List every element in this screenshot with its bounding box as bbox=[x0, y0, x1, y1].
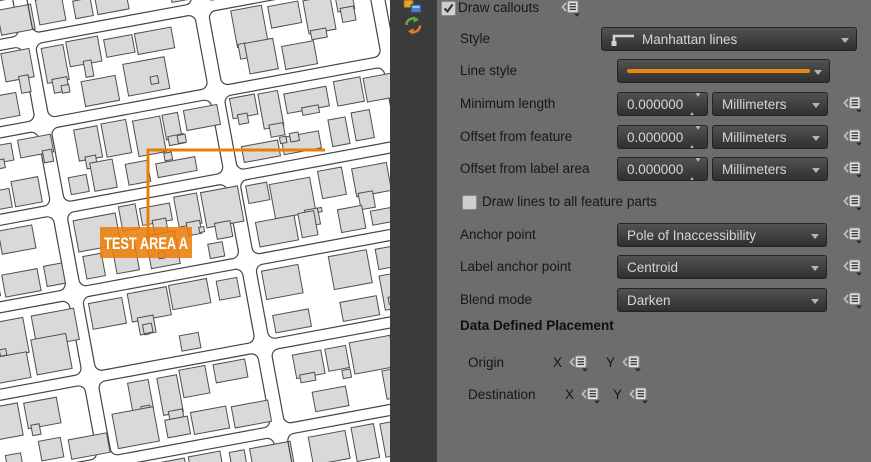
destination-x-label: X bbox=[565, 386, 574, 404]
offset-from-feature-value: 0.000000 bbox=[627, 130, 683, 145]
style-combobox[interactable]: Manhattan lines bbox=[601, 27, 857, 51]
building bbox=[213, 359, 248, 383]
label-anchor-point-combobox[interactable]: Centroid bbox=[617, 255, 827, 279]
building bbox=[42, 149, 53, 163]
unit-value: Millimeters bbox=[722, 130, 787, 145]
building bbox=[382, 367, 390, 399]
building bbox=[177, 134, 186, 143]
building bbox=[279, 136, 286, 143]
building bbox=[380, 417, 390, 458]
building bbox=[342, 369, 352, 379]
building bbox=[375, 242, 390, 269]
offset-from-label-area-spinbox[interactable]: 0.000000 bbox=[617, 157, 708, 181]
anchor-point-combobox[interactable]: Pole of Inaccessibility bbox=[617, 223, 827, 247]
building bbox=[340, 296, 380, 322]
building bbox=[0, 188, 12, 210]
draw-lines-all-parts-label: Draw lines to all feature parts bbox=[482, 193, 657, 211]
building bbox=[2, 269, 41, 297]
street-block-outline bbox=[381, 0, 390, 54]
chevron-down-icon bbox=[812, 103, 820, 108]
draw-lines-all-parts-checkbox[interactable] bbox=[462, 195, 477, 210]
building bbox=[246, 182, 270, 203]
building bbox=[81, 75, 120, 106]
building bbox=[363, 73, 390, 102]
blend-mode-label: Blend mode bbox=[460, 291, 532, 309]
data-defined-override-button[interactable] bbox=[843, 258, 864, 276]
building bbox=[379, 272, 390, 311]
map-canvas[interactable]: TEST AREA A bbox=[0, 0, 390, 462]
minimum-length-label: Minimum length bbox=[460, 95, 555, 113]
building bbox=[93, 0, 129, 15]
building bbox=[0, 159, 5, 170]
anchor-point-label: Anchor point bbox=[460, 226, 536, 244]
minimum-length-value: 0.000000 bbox=[627, 97, 683, 112]
offset-from-label-area-unit-combobox[interactable]: Millimeters bbox=[712, 157, 828, 181]
building bbox=[349, 335, 390, 374]
callouts-panel: Draw callouts Style Manhattan lines Line… bbox=[437, 0, 871, 462]
chevron-down-icon bbox=[814, 70, 822, 75]
building bbox=[351, 110, 374, 141]
anchor-point-value: Pole of Inaccessibility bbox=[627, 228, 756, 243]
building bbox=[199, 227, 205, 233]
building bbox=[333, 77, 364, 106]
unit-value: Millimeters bbox=[722, 162, 787, 177]
building bbox=[0, 403, 23, 442]
building bbox=[101, 119, 132, 157]
building bbox=[68, 174, 89, 194]
building bbox=[269, 123, 285, 138]
building bbox=[0, 92, 20, 122]
building bbox=[318, 167, 347, 199]
chevron-down-icon bbox=[811, 234, 819, 239]
building bbox=[88, 297, 126, 329]
building bbox=[0, 4, 35, 35]
spinner-arrows-icon[interactable] bbox=[689, 97, 701, 112]
building bbox=[273, 309, 312, 333]
building bbox=[1, 48, 34, 81]
building bbox=[31, 424, 41, 436]
building bbox=[74, 126, 103, 161]
building bbox=[156, 157, 197, 178]
building bbox=[317, 207, 322, 212]
building bbox=[255, 215, 298, 247]
building bbox=[325, 345, 350, 371]
building bbox=[208, 242, 225, 259]
building bbox=[289, 132, 299, 142]
chevron-down-icon bbox=[812, 168, 820, 173]
building bbox=[214, 221, 232, 240]
data-defined-override-button[interactable] bbox=[843, 226, 864, 244]
building bbox=[179, 365, 210, 397]
map-svg: TEST AREA A bbox=[0, 0, 390, 462]
spinner-arrows-icon[interactable] bbox=[689, 162, 701, 177]
building bbox=[351, 424, 380, 462]
building bbox=[282, 41, 318, 70]
building bbox=[68, 433, 110, 459]
draw-callouts-checkbox[interactable] bbox=[441, 1, 456, 16]
building bbox=[5, 453, 23, 462]
label-anchor-point-value: Centroid bbox=[627, 260, 678, 275]
offset-from-feature-spinbox[interactable]: 0.000000 bbox=[617, 125, 708, 149]
data-defined-override-button[interactable] bbox=[561, 0, 582, 17]
building bbox=[134, 27, 174, 54]
qgis-callouts-settings: TEST AREA A Draw callouts bbox=[0, 0, 871, 462]
building bbox=[24, 397, 61, 429]
building bbox=[328, 117, 350, 147]
building bbox=[261, 264, 303, 299]
data-defined-placement-heading: Data Defined Placement bbox=[460, 317, 614, 335]
offset-from-label-area-value: 0.000000 bbox=[627, 162, 683, 177]
data-defined-override-button[interactable] bbox=[843, 291, 864, 309]
chevron-down-icon bbox=[811, 299, 819, 304]
building bbox=[268, 1, 302, 28]
building bbox=[0, 225, 36, 254]
offset-from-feature-label: Offset from feature bbox=[460, 128, 572, 146]
data-defined-override-button[interactable] bbox=[843, 95, 864, 113]
line-style-preview bbox=[627, 69, 810, 73]
building bbox=[150, 76, 159, 85]
building bbox=[0, 0, 13, 4]
line-style-combobox[interactable] bbox=[617, 59, 830, 83]
building bbox=[31, 333, 72, 374]
map-label-text: TEST AREA A bbox=[104, 234, 188, 253]
building bbox=[35, 0, 66, 25]
building bbox=[61, 84, 70, 93]
building bbox=[328, 250, 372, 290]
manhattan-lines-icon bbox=[611, 31, 635, 47]
building bbox=[231, 400, 271, 428]
data-defined-override-button[interactable] bbox=[843, 193, 864, 211]
line-style-label: Line style bbox=[460, 62, 517, 80]
minimum-length-unit-combobox[interactable]: Millimeters bbox=[712, 92, 828, 116]
origin-x-label: X bbox=[553, 354, 562, 372]
building bbox=[216, 277, 240, 300]
blend-mode-combobox[interactable]: Darken bbox=[617, 288, 827, 312]
building bbox=[38, 437, 64, 461]
building bbox=[190, 406, 229, 434]
chevron-down-icon bbox=[841, 38, 849, 43]
building bbox=[237, 113, 248, 125]
building bbox=[11, 177, 42, 207]
style-label: Style bbox=[460, 30, 490, 48]
building bbox=[244, 38, 278, 74]
building bbox=[370, 208, 390, 226]
building bbox=[337, 205, 365, 232]
draw-callouts-label: Draw callouts bbox=[458, 0, 539, 17]
offset-from-label-area-label: Offset from label area bbox=[460, 160, 590, 178]
building bbox=[340, 6, 356, 22]
building bbox=[0, 352, 31, 384]
chevron-down-icon bbox=[811, 266, 819, 271]
data-defined-override-button[interactable] bbox=[569, 354, 590, 372]
building bbox=[44, 263, 66, 287]
refresh-arrows-icon[interactable] bbox=[403, 15, 425, 35]
unit-value: Millimeters bbox=[722, 97, 787, 112]
building bbox=[112, 407, 159, 449]
styling-tab-strip bbox=[390, 0, 437, 462]
building bbox=[165, 416, 191, 438]
building bbox=[73, 0, 94, 19]
destination-y-label: Y bbox=[613, 386, 622, 404]
building bbox=[164, 152, 173, 161]
data-defined-override-button[interactable] bbox=[581, 386, 602, 404]
offset-from-feature-unit-combobox[interactable]: Millimeters bbox=[712, 125, 828, 149]
style-value: Manhattan lines bbox=[642, 32, 737, 47]
street-blocks bbox=[0, 0, 390, 462]
building bbox=[123, 57, 170, 96]
building bbox=[179, 332, 201, 351]
building bbox=[308, 430, 350, 462]
building bbox=[188, 451, 226, 462]
data-defined-override-button[interactable] bbox=[622, 354, 643, 372]
destination-label: Destination bbox=[468, 386, 536, 404]
building bbox=[0, 349, 7, 357]
building bbox=[0, 270, 1, 299]
building bbox=[90, 159, 118, 191]
origin-label: Origin bbox=[468, 354, 504, 372]
building bbox=[143, 323, 153, 333]
data-defined-override-button[interactable] bbox=[843, 128, 864, 146]
building bbox=[169, 279, 211, 310]
label-anchor-point-label: Label anchor point bbox=[460, 258, 571, 276]
building bbox=[104, 35, 135, 58]
blend-mode-value: Darken bbox=[627, 293, 671, 308]
data-defined-override-button[interactable] bbox=[629, 386, 650, 404]
data-defined-override-button[interactable] bbox=[843, 160, 864, 178]
minimum-length-spinbox[interactable]: 0.000000 bbox=[617, 92, 708, 116]
building bbox=[229, 450, 251, 462]
chevron-down-icon bbox=[812, 136, 820, 141]
origin-y-label: Y bbox=[606, 354, 615, 372]
spinner-arrows-icon[interactable] bbox=[689, 130, 701, 145]
building bbox=[312, 386, 349, 412]
